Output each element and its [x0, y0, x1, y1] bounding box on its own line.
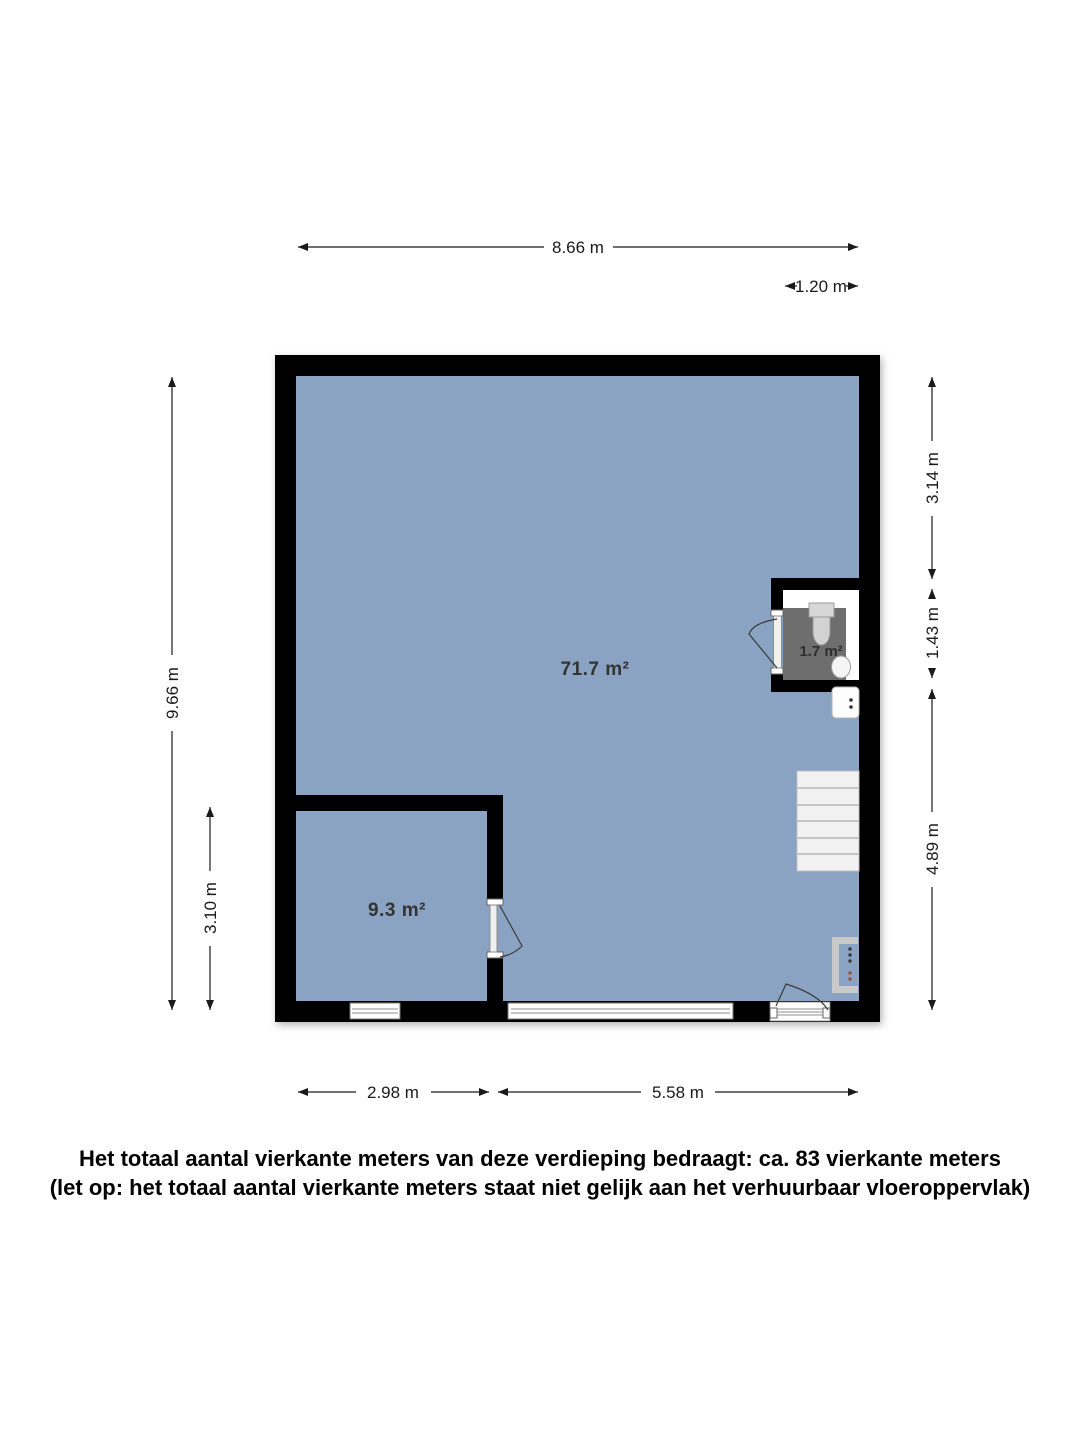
entry-door-jamb-left: [770, 1008, 777, 1018]
side-room-right-wall-upper: [487, 795, 503, 899]
footer-line-2: (let op: het totaal aantal vierkante met…: [50, 1175, 1031, 1200]
dimension-side-room-height: 3.10 m: [201, 807, 220, 1010]
dimension-bottom-main-label: 5.58 m: [652, 1083, 704, 1102]
side-room-door-leaf: [490, 905, 497, 952]
dimension-right-lower: 4.89 m: [923, 689, 942, 1010]
dimension-right-lower-label: 4.89 m: [923, 823, 942, 875]
bathroom-left-wall-lower: [771, 674, 783, 692]
stairs: [797, 771, 859, 871]
dimension-right-upper: 3.14 m: [923, 377, 942, 579]
footer-line-1: Het totaal aantal vierkante meters van d…: [79, 1146, 1001, 1171]
window-side-room: [350, 1003, 400, 1019]
window-main-room: [508, 1003, 733, 1019]
side-room-door-jamb-top: [487, 899, 503, 905]
dimension-left-total-height-label: 9.66 m: [163, 667, 182, 719]
bathroom-bottom-wall: [771, 680, 880, 692]
side-room-top-wall: [275, 795, 503, 811]
dimension-right-bathroom-label: 1.43 m: [923, 607, 942, 659]
entry-door-jamb-right: [823, 1008, 830, 1018]
main-room-area-label: 71.7 m²: [561, 659, 630, 680]
dimension-bathroom-width-label: 1.20 m: [795, 277, 847, 296]
dimension-side-room-height-label: 3.10 m: [201, 882, 220, 934]
dimension-top-width-label: 8.66 m: [552, 238, 604, 257]
dimension-right-bathroom: 1.43 m: [923, 589, 942, 678]
bathroom-door-jamb-bottom: [771, 668, 783, 674]
dimension-right-upper-label: 3.14 m: [923, 452, 942, 504]
floor-plan-canvas: 8.66 m 1.20 m 9.66 m 3.10 m 3.14 m 1.43 …: [0, 0, 1080, 1440]
floor-plan-page: 8.66 m 1.20 m 9.66 m 3.10 m 3.14 m 1.43 …: [0, 0, 1080, 1440]
dimension-bathroom-width: 1.20 m: [785, 277, 858, 296]
dimension-left-total-height: 9.66 m: [163, 377, 182, 1010]
dimension-bottom-main: 5.58 m: [498, 1083, 858, 1102]
dimension-bottom-side-room: 2.98 m: [298, 1083, 489, 1102]
bathroom-door-jamb-top: [771, 610, 783, 616]
bathroom-top-wall: [771, 578, 880, 590]
side-room-area-label: 9.3 m²: [368, 900, 426, 921]
footer-note: Het totaal aantal vierkante meters van d…: [50, 1146, 1031, 1200]
bathroom-left-wall-upper: [771, 578, 783, 614]
dimension-bottom-side-room-label: 2.98 m: [367, 1083, 419, 1102]
dimension-top-width: 8.66 m: [298, 238, 858, 257]
bathroom-area-label: 1.7 m²: [799, 643, 842, 660]
side-room-right-wall-lower: [487, 958, 503, 1022]
bathroom-door-leaf: [774, 616, 782, 668]
building: 1.7 m²: [275, 355, 880, 1022]
boiler-icon: [832, 687, 859, 718]
